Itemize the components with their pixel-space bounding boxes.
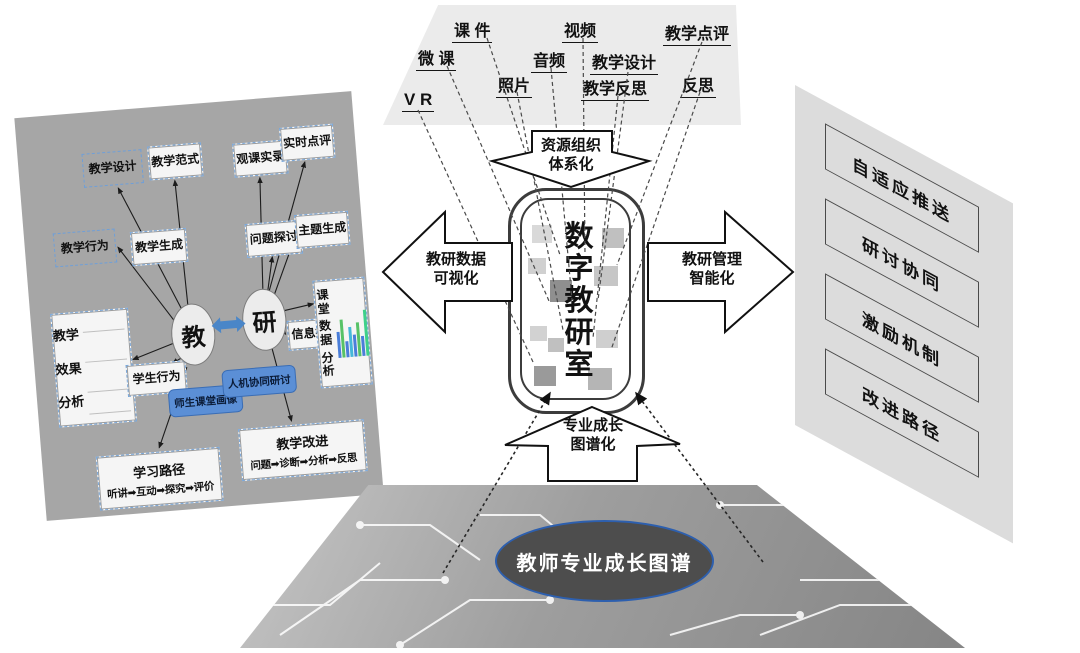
digital-research-room-device: 数字教研室: [508, 188, 645, 414]
resource-courseware: 课 件: [452, 17, 492, 43]
resource-photo: 照片: [496, 72, 532, 98]
right-arrow-label: 教研管理智能化: [656, 250, 768, 288]
resource-teaching-review: 教学点评: [663, 20, 731, 46]
resource-teaching-reflection: 教学反思: [581, 75, 649, 101]
node-teaching-generation: 教学生成: [130, 228, 189, 266]
resource-tile: [528, 258, 546, 274]
node-teaching-improvement: 教学改进 问题➡诊断➡分析➡反思: [238, 419, 368, 481]
device-screen: 数字教研室: [520, 198, 631, 400]
node-learning-path: 学习路径 听讲➡互动➡探究➡评价: [96, 447, 224, 511]
node-teaching-behavior: 教学行为: [53, 229, 118, 268]
line-chart-icon: [82, 315, 132, 418]
node-teaching-paradigm: 教学范式: [147, 142, 204, 180]
resource-audio: 音频: [531, 47, 567, 73]
resource-tile: [530, 326, 547, 341]
resource-video: 视频: [562, 17, 598, 43]
classroom-data-analysis-chart: 课堂 数据 分析: [312, 277, 372, 389]
left-arrow-label: 教研数据可视化: [400, 250, 512, 288]
research-management-panel: 自适应推送 研讨协同 激励机制 改进路径: [795, 85, 1013, 543]
resource-tile: [596, 330, 618, 348]
resource-tile: [594, 266, 618, 286]
node-teaching-design: 教学设计: [81, 149, 144, 188]
effect-chart-label: 教学 效果 分析: [52, 319, 86, 421]
resource-micro-lesson: 微 课: [416, 45, 456, 71]
resource-tile: [534, 366, 556, 386]
resource-tile: [532, 225, 552, 243]
node-realtime-comment: 实时点评: [279, 124, 336, 162]
teaching-research-panel: 教学设计 教学范式 观课实录 实时点评 教学行为 教学生成 问题探讨 主题生成 …: [14, 91, 383, 521]
resource-tile: [602, 228, 624, 248]
resource-teaching-design: 教学设计: [590, 49, 658, 75]
top-arrow-label: 资源组织体系化: [516, 136, 626, 174]
resource-vr: V R: [402, 90, 434, 112]
bottom-arrow-label: 专业成长图谱化: [538, 416, 648, 454]
diagram-canvas: 教学设计 教学范式 观课实录 实时点评 教学行为 教学生成 问题探讨 主题生成 …: [0, 0, 1080, 653]
device-title: 数字教研室: [562, 222, 596, 381]
node-topic-generation: 主题生成: [294, 211, 351, 249]
node-human-machine-seminar: 人机协同研讨: [221, 364, 297, 398]
resource-reflection: 反思: [680, 72, 716, 98]
teacher-growth-map-ellipse: 教师专业成长图谱: [495, 520, 714, 602]
teaching-effect-analysis-chart: 教学 效果 分析: [50, 308, 137, 428]
teach-research-link-arrow: [211, 313, 246, 336]
bar-chart-icon: [335, 306, 370, 358]
growth-map-board: 教师专业成长图谱: [240, 485, 965, 648]
